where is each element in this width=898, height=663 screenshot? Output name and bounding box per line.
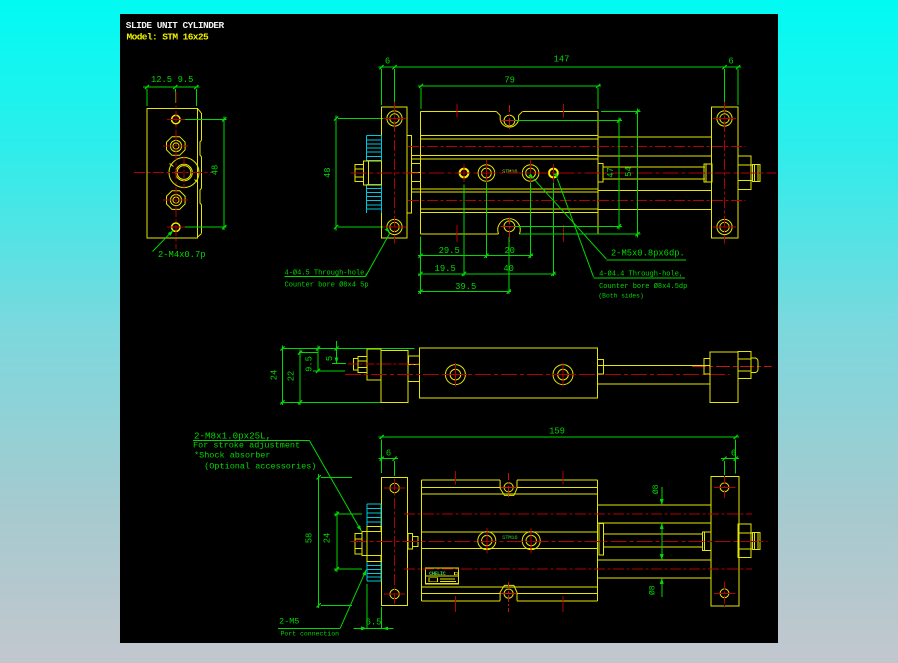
svg-text:12.5: 12.5 [151,75,172,85]
svg-text:5: 5 [325,356,335,361]
svg-text:Model: STM 16x25: Model: STM 16x25 [127,32,210,43]
svg-text:*Shock absorber: *Shock absorber [194,450,271,460]
svg-text:48: 48 [323,167,333,178]
svg-text:SLIDE UNIT CYLINDER: SLIDE UNIT CYLINDER [126,20,225,31]
svg-text:(Optional accessories): (Optional accessories) [204,462,316,472]
svg-text:6.5: 6.5 [366,617,382,627]
svg-text:Ø8: Ø8 [652,484,661,494]
svg-text:STM16: STM16 [502,534,517,541]
svg-text:39.5: 39.5 [455,282,476,292]
svg-text:9.5: 9.5 [305,356,315,372]
svg-text:Counter bore Ø8x4 5p: Counter bore Ø8x4 5p [285,280,369,289]
svg-text:159: 159 [549,427,565,437]
svg-text:79: 79 [504,76,515,86]
svg-text:9.5: 9.5 [178,75,194,85]
svg-text:2-M5: 2-M5 [279,616,299,626]
svg-text:For stroke adjustment: For stroke adjustment [193,441,300,451]
svg-text:4-Ø4.5 Through-hole,: 4-Ø4.5 Through-hole, [285,269,369,278]
svg-text:4-Ø4.4 Through-hole,: 4-Ø4.4 Through-hole, [599,269,683,278]
svg-text:STM16: STM16 [502,168,517,175]
svg-text:CHELIC: CHELIC [429,571,446,577]
svg-text:19.5: 19.5 [435,264,456,274]
svg-text:24: 24 [270,370,280,381]
svg-text:47: 47 [606,167,616,178]
svg-text:147: 147 [554,55,570,65]
svg-text:2-M8x1.0px25L,: 2-M8x1.0px25L, [194,430,271,441]
svg-text:(Both sides): (Both sides) [598,292,643,299]
svg-text:6: 6 [728,57,733,67]
svg-text:6: 6 [386,449,391,459]
svg-text:20: 20 [504,246,515,256]
svg-text:2-M4x0.7p: 2-M4x0.7p [158,250,206,260]
svg-text:58: 58 [305,533,315,544]
svg-text:48: 48 [211,165,221,176]
svg-text:54: 54 [624,166,634,177]
svg-text:24: 24 [323,533,333,544]
svg-text:22: 22 [287,371,297,382]
svg-text:Ø8: Ø8 [648,585,657,595]
svg-text:6: 6 [385,57,390,67]
svg-text:Counter bore Ø8x4.5dp: Counter bore Ø8x4.5dp [599,282,687,291]
svg-text:2-M5x0.8px6dp.: 2-M5x0.8px6dp. [611,249,685,259]
svg-text:Port connection: Port connection [281,631,340,638]
svg-text:29.5: 29.5 [439,246,460,256]
